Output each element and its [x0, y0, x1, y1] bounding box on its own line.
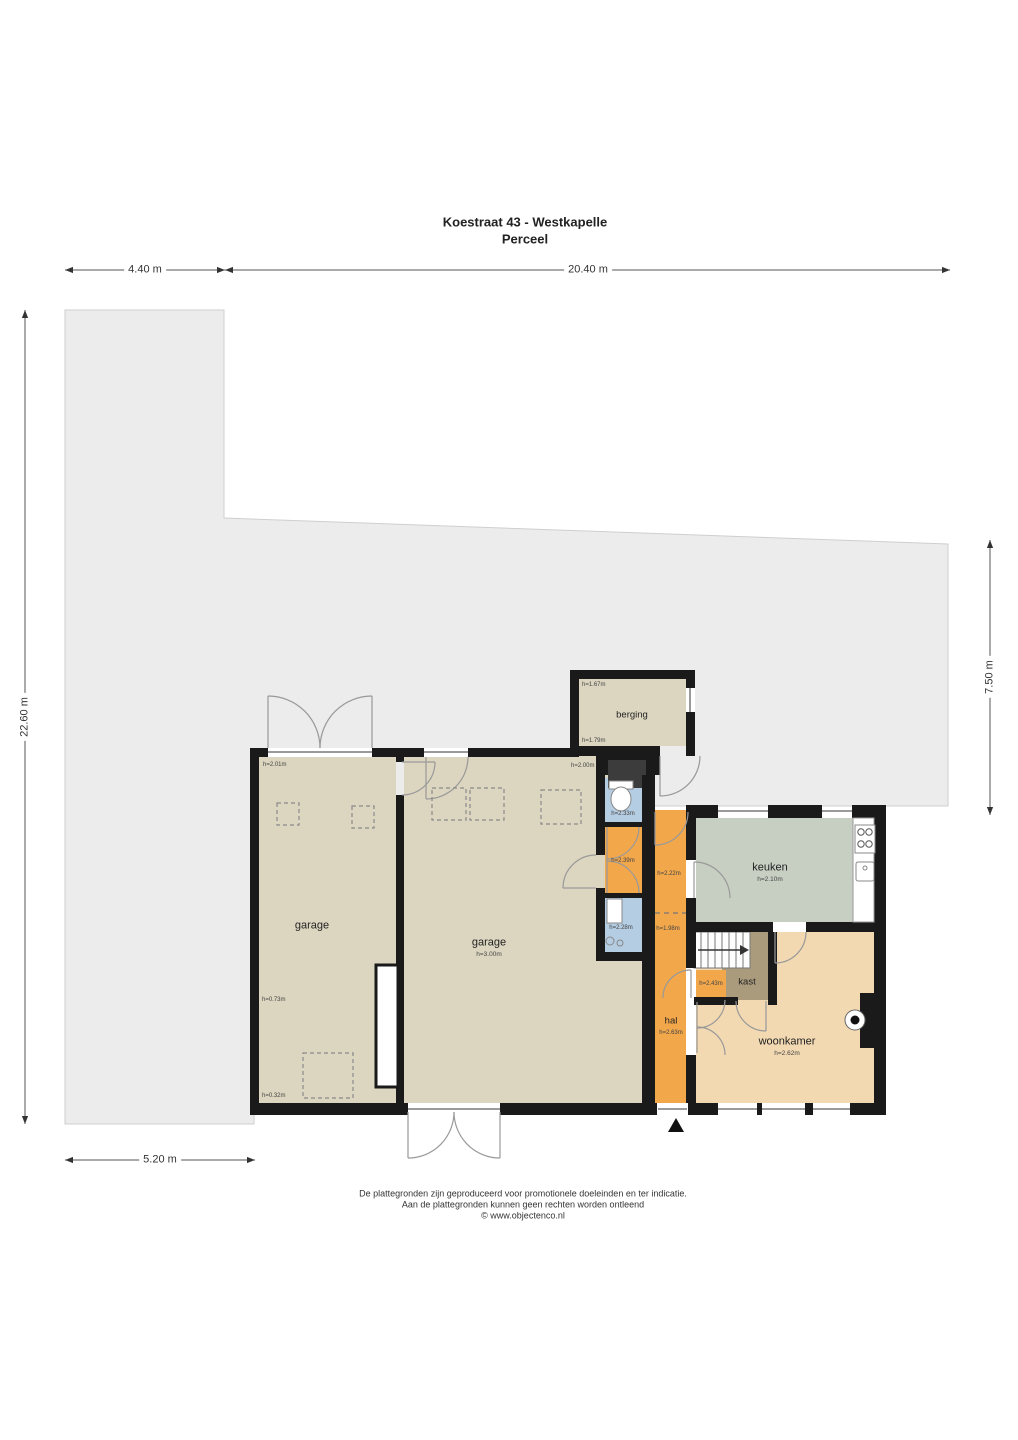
room-label-keuken: keuken [752, 863, 787, 874]
toilet-bowl [611, 787, 631, 811]
footer-disclaimer-line2: Aan de plattegronden kunnen geen rechten… [402, 1201, 644, 1210]
height-label-badkamer: h=2.28m [609, 925, 633, 931]
height-label-keuken: h=2.10m [757, 877, 782, 884]
dimension-right: 7.50 m [985, 656, 996, 698]
room-label-kast: kast [738, 977, 755, 987]
dimension-bottom: 5.20 m [139, 1155, 181, 1166]
floorplan: Koestraat 43 - Westkapelle Perceel 4.40 … [0, 0, 1018, 1440]
height-label-berging-top: h=1.67m [582, 682, 606, 688]
height-label-garage-bottomleft: h=0.32m [262, 1093, 286, 1099]
height-label-hal-mid: h=1.98m [656, 926, 680, 932]
garage-wall-stub [376, 965, 398, 1087]
dimension-top-left: 4.40 m [124, 265, 166, 276]
dimension-left: 22.60 m [20, 693, 31, 741]
kitchen-sink [856, 862, 874, 881]
height-label-entry: h=2.00m [571, 763, 595, 769]
fireplace-core [851, 1016, 860, 1025]
entrance-arrow [668, 1118, 684, 1132]
height-label-garage-left: h=0.73m [262, 997, 286, 1003]
footer-disclaimer-line1: De plattegronden zijn geproduceerd voor … [359, 1190, 687, 1199]
height-label-garage-topleft: h=2.01m [263, 762, 287, 768]
height-label-toilet: h=2.33m [611, 811, 635, 817]
staircase [694, 932, 750, 968]
height-label-hal-top: h=2.22m [657, 871, 681, 877]
room-hal [655, 810, 686, 1103]
room-label-berging: berging [616, 710, 648, 720]
height-label-hal: h=2.63m [659, 1030, 683, 1036]
plan-title: Koestraat 43 - Westkapelle [443, 216, 608, 229]
room-label-garage-main: garage [472, 938, 506, 949]
footer-copyright: © www.objectenco.nl [481, 1212, 565, 1221]
dimension-top-right: 20.40 m [564, 265, 612, 276]
bathroom-sink [607, 899, 622, 923]
room-label-hal: hal [665, 1016, 678, 1026]
room-label-garage-left: garage [295, 921, 329, 932]
room-label-woonkamer: woonkamer [759, 1037, 816, 1048]
height-label-trapkast: h=2.43m [699, 981, 723, 987]
height-label-berging-bottom: h=1.79m [582, 738, 606, 744]
height-label-woonkamer: h=2.62m [774, 1051, 799, 1058]
height-label-portaal: h=2.39m [611, 858, 635, 864]
height-label-garage-main: h=3.00m [476, 952, 501, 959]
stove [855, 825, 875, 853]
plan-subtitle: Perceel [502, 233, 548, 246]
